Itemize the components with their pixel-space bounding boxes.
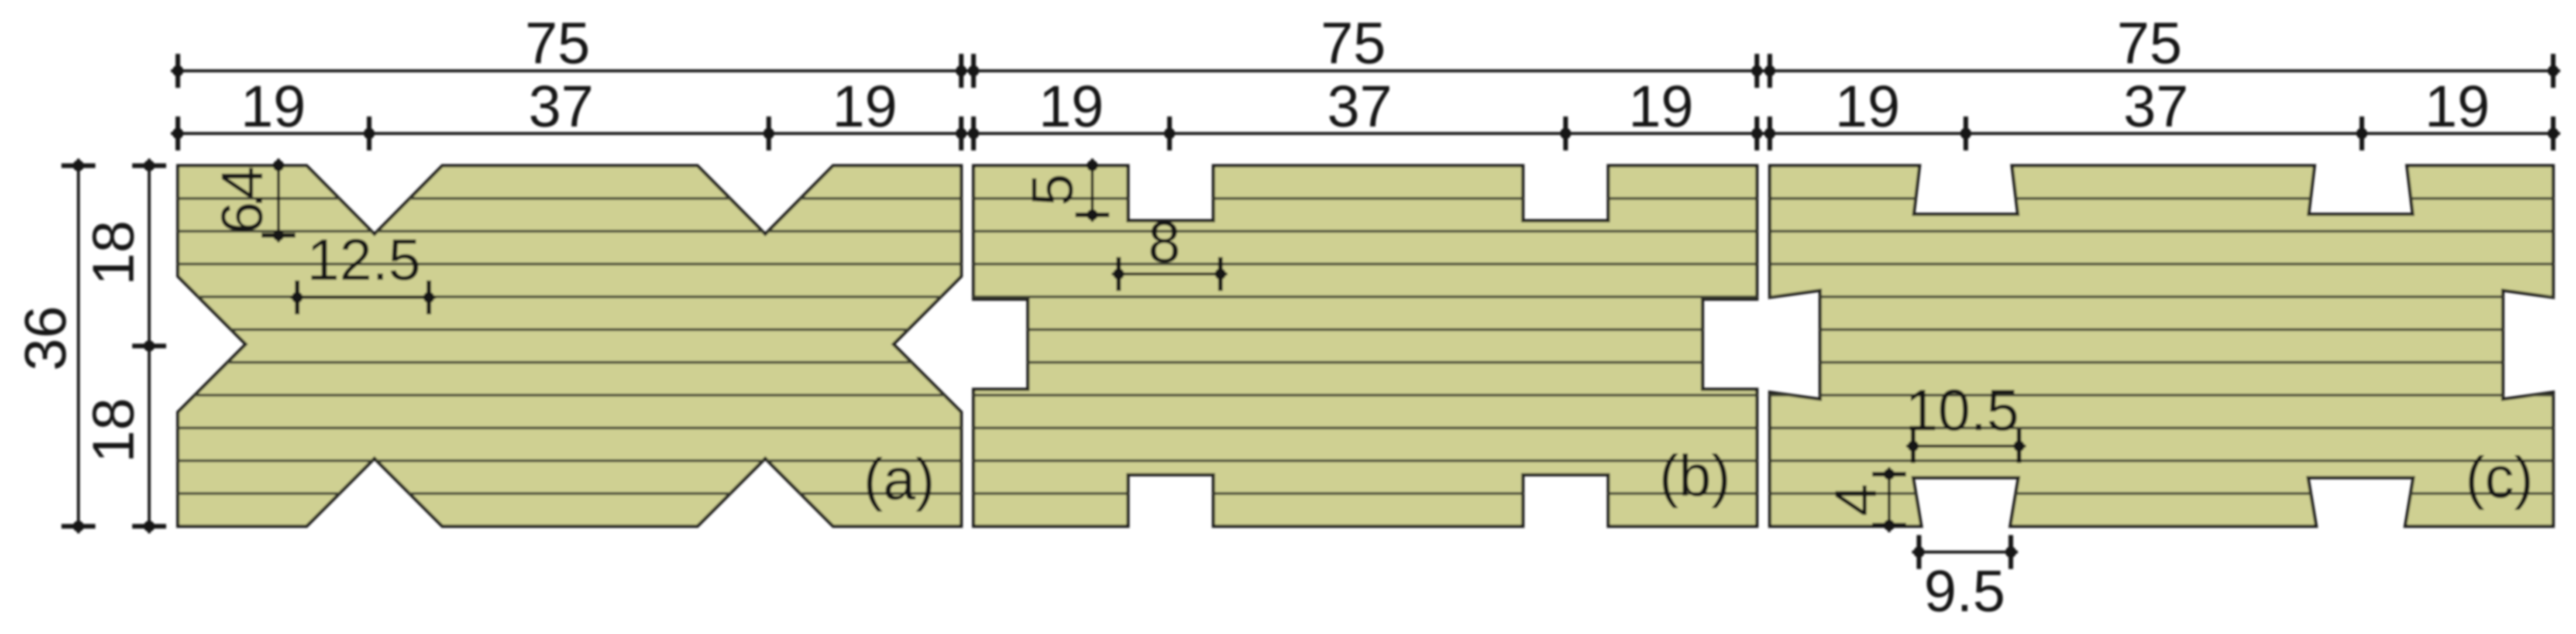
svg-text:19: 19 [1038, 74, 1103, 139]
svg-text:19: 19 [2424, 74, 2489, 139]
svg-text:10.5: 10.5 [1906, 378, 2020, 443]
svg-text:19: 19 [832, 74, 897, 139]
svg-text:19: 19 [240, 74, 305, 139]
svg-text:18: 18 [81, 220, 146, 285]
svg-text:75: 75 [1320, 11, 1385, 76]
svg-text:6.4: 6.4 [209, 166, 275, 234]
svg-text:75: 75 [2117, 11, 2182, 76]
svg-text:36: 36 [13, 306, 78, 371]
svg-text:37: 37 [528, 74, 593, 139]
svg-text:(c): (c) [2465, 445, 2534, 510]
svg-text:9.5: 9.5 [1924, 558, 2005, 624]
svg-text:4: 4 [1823, 484, 1889, 516]
svg-text:(b): (b) [1659, 443, 1731, 509]
svg-text:37: 37 [1327, 74, 1392, 139]
svg-text:19: 19 [1835, 74, 1900, 139]
svg-text:75: 75 [525, 11, 590, 76]
svg-text:12.5: 12.5 [307, 227, 421, 293]
svg-text:8: 8 [1148, 210, 1181, 275]
svg-text:19: 19 [1628, 74, 1693, 139]
svg-text:(a): (a) [864, 447, 935, 512]
svg-text:5: 5 [1020, 173, 1085, 206]
svg-text:37: 37 [2123, 74, 2188, 139]
svg-text:18: 18 [81, 397, 146, 462]
